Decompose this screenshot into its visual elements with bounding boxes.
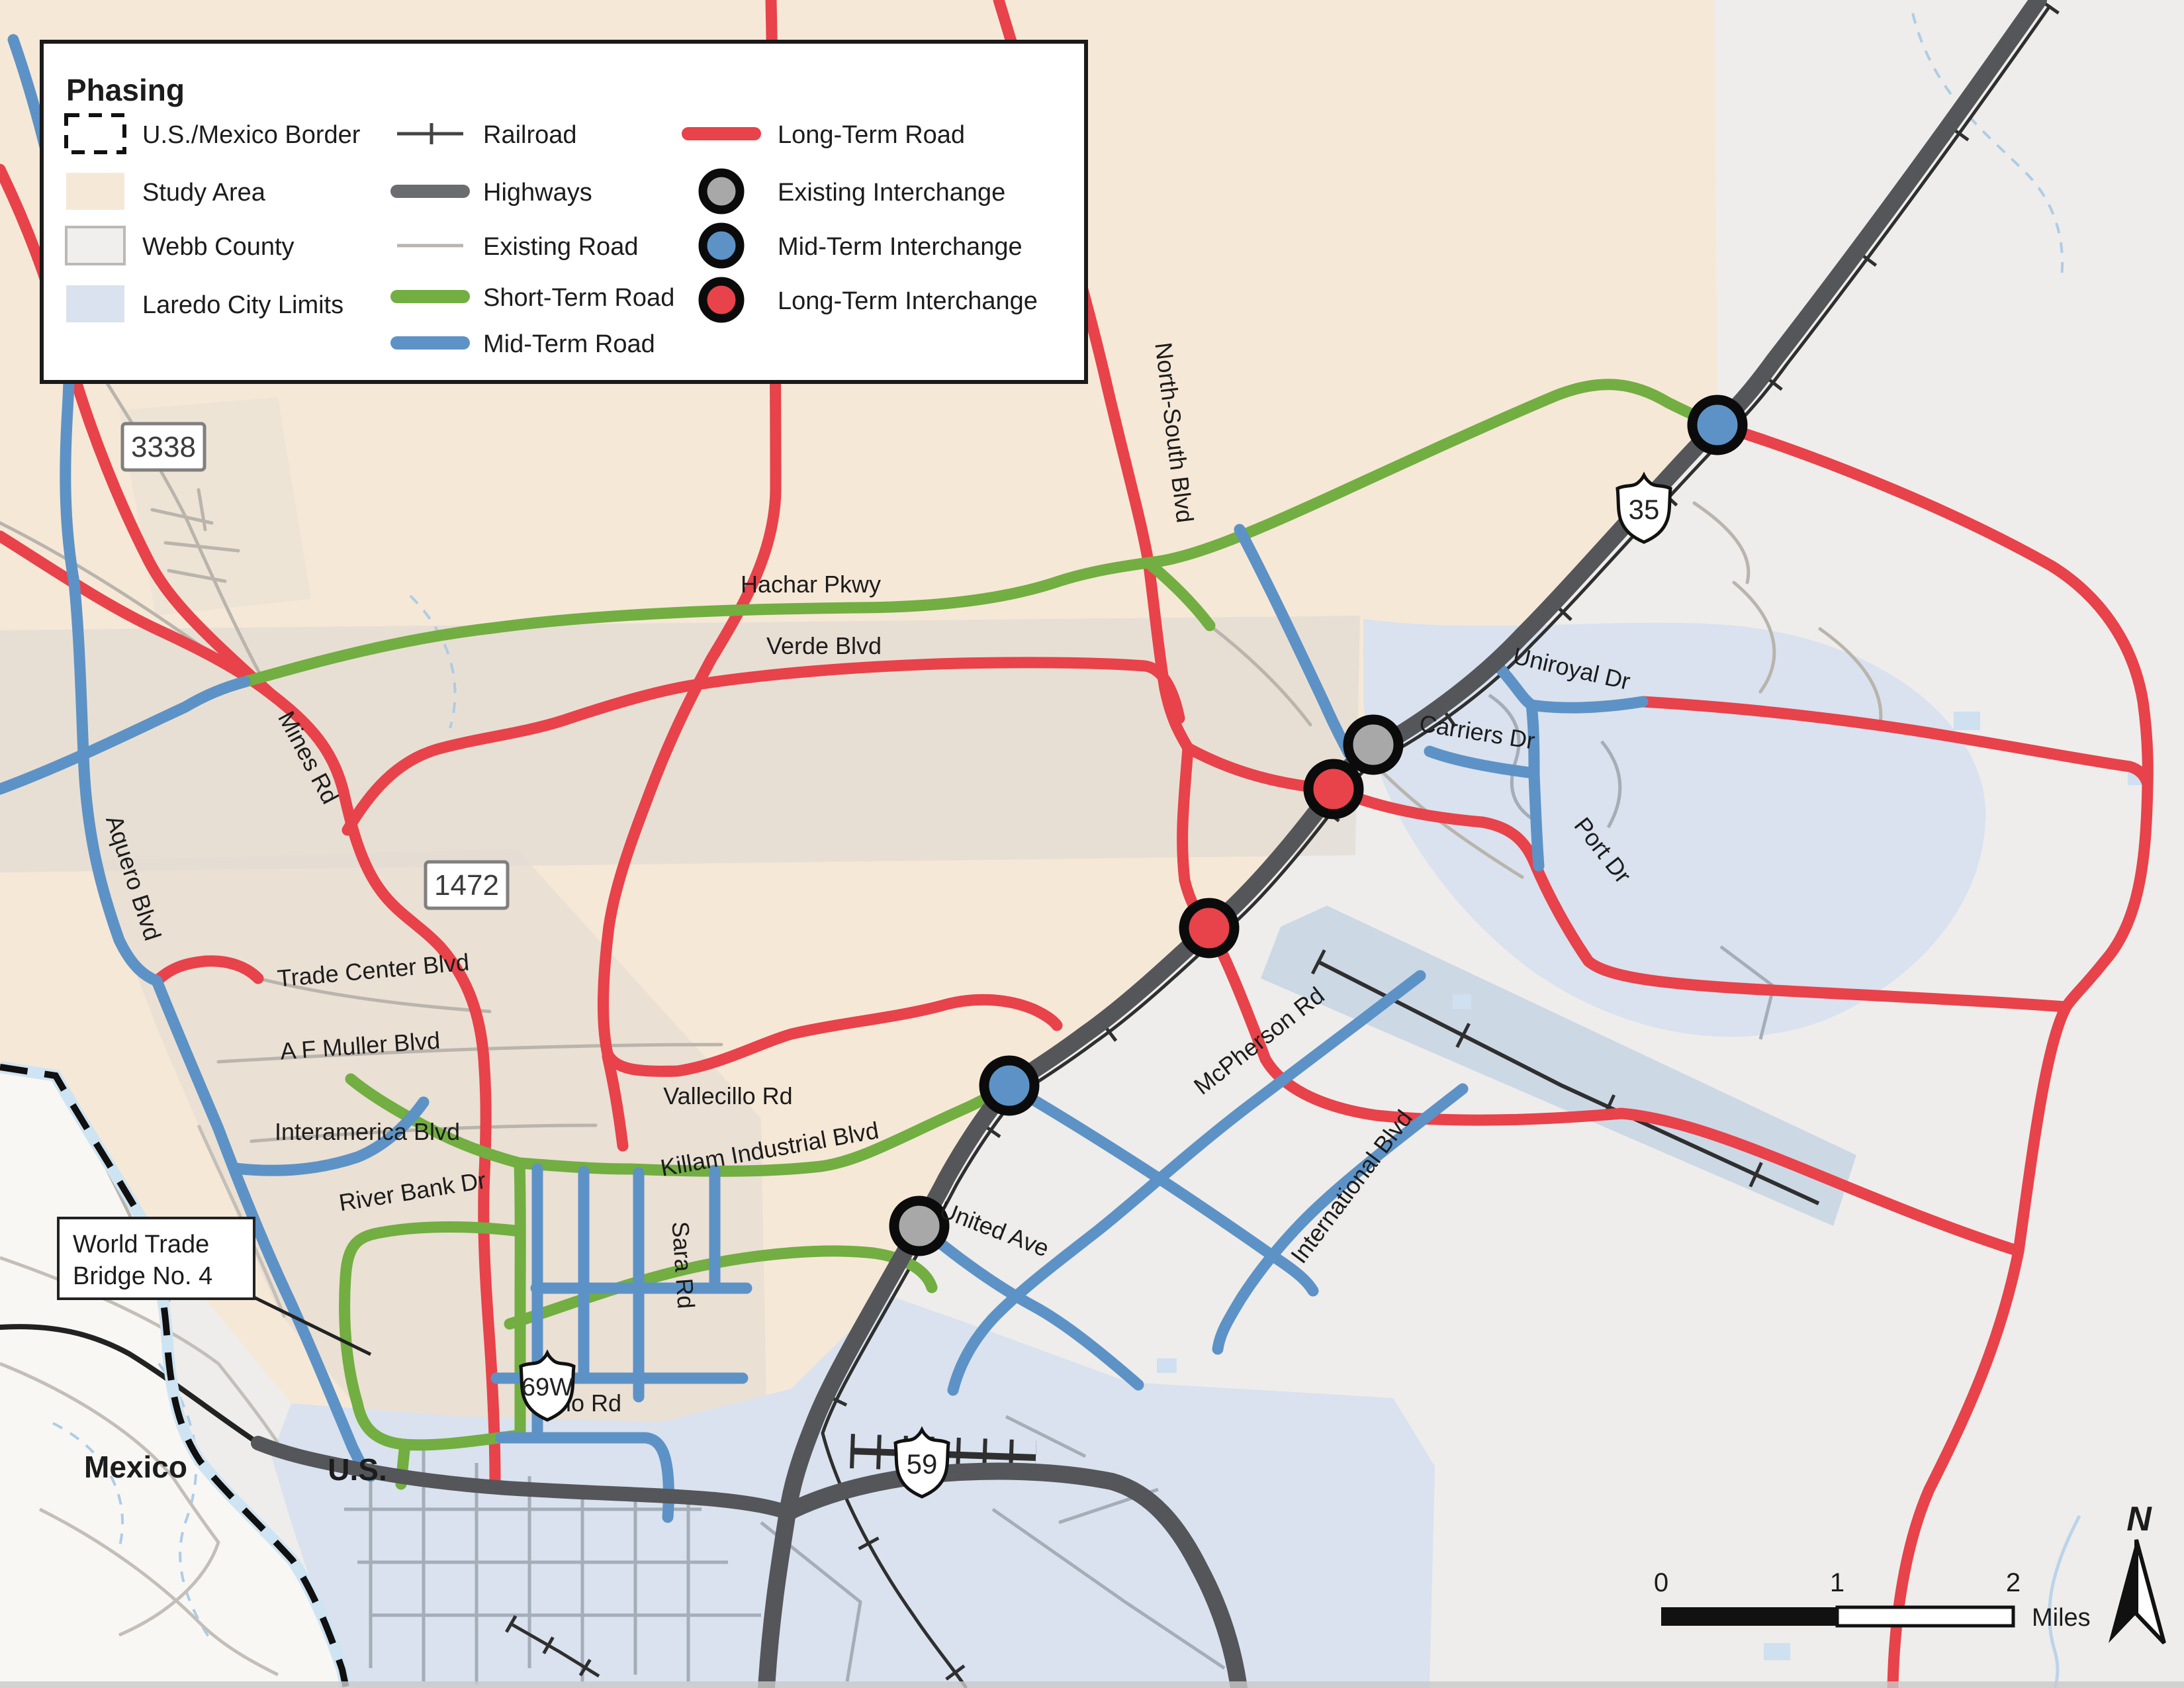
svg-text:1472: 1472 [434,869,499,902]
legend-swatch-border-icon [66,115,124,152]
legend-existing-interchange-icon [703,173,740,210]
phasing-map: Mines Rd Aquero Blvd Hachar Pkwy Verde B… [0,0,2184,1688]
legend-label-mid-term-interchange: Mid-Term Interchange [778,233,1023,261]
legend-swatch-laredo-icon [66,285,124,322]
shield-fm3338: 3338 [122,424,205,470]
scale-tick-1: 1 [1830,1568,1844,1597]
legend-label-short-term-road: Short-Term Road [483,284,674,312]
legend-label-border: U.S./Mexico Border [142,121,361,149]
legend-label-webb-county: Webb County [142,233,295,261]
map-bottom-edge [0,1681,2184,1688]
pond [1954,712,1980,730]
road-label-vallecillo-rd: Vallecillo Rd [663,1082,792,1109]
legend-swatch-webb-county-icon [66,227,124,264]
scale-bar-empty-segment [1837,1607,2013,1626]
legend-long-term-interchange-icon [703,281,740,318]
pond [1157,1358,1177,1373]
mid-term-interchange-icon [984,1060,1034,1111]
region-label-mexico: Mexico [84,1450,187,1484]
scale-bar-filled-segment [1661,1607,1837,1626]
existing-interchange-icon [1348,720,1398,770]
legend: Phasing U.S./Mexico Border Study Area We… [42,42,1086,382]
legend-label-railroad: Railroad [483,121,577,149]
svg-text:3338: 3338 [131,431,196,463]
long-term-interchange-icon [1184,903,1234,953]
legend-label-long-term-road: Long-Term Road [778,121,965,149]
scale-tick-2: 2 [2006,1568,2021,1597]
road-green-connector [520,1163,520,1433]
legend-label-existing-road: Existing Road [483,233,638,261]
scale-tick-0: 0 [1654,1568,1668,1597]
pond [1453,994,1471,1009]
region-label-us: U.S. [328,1452,387,1487]
pond [1764,1643,1790,1660]
svg-text:35: 35 [1629,494,1660,525]
svg-text:69W: 69W [522,1374,573,1401]
legend-label-laredo: Laredo City Limits [142,291,343,319]
legend-title: Phasing [66,73,185,107]
legend-label-mid-term-road: Mid-Term Road [483,330,655,358]
legend-label-long-term-interchange: Long-Term Interchange [778,287,1038,315]
scale-unit-label: Miles [2032,1604,2091,1632]
long-term-interchange-icon [1308,764,1359,814]
road-label-interamerica-blvd: Interamerica Blvd [275,1118,460,1145]
callout-line2: Bridge No. 4 [73,1262,212,1290]
mid-term-interchange-icon [1692,400,1743,450]
callout-line1: World Trade [73,1231,209,1258]
road-label-verde-blvd: Verde Blvd [766,632,882,659]
legend-label-study-area: Study Area [142,179,266,207]
road-label-hachar-pkwy: Hachar Pkwy [741,571,881,598]
shield-fm1472: 1472 [426,862,508,908]
legend-label-highways: Highways [483,179,592,207]
legend-label-existing-interchange: Existing Interchange [778,179,1005,207]
north-label: N [2126,1500,2152,1538]
map-canvas: Mines Rd Aquero Blvd Hachar Pkwy Verde B… [0,0,2184,1688]
existing-interchange-icon [894,1201,944,1251]
legend-swatch-study-area-icon [66,173,124,210]
legend-mid-term-interchange-icon [703,227,740,264]
svg-text:59: 59 [907,1448,938,1479]
